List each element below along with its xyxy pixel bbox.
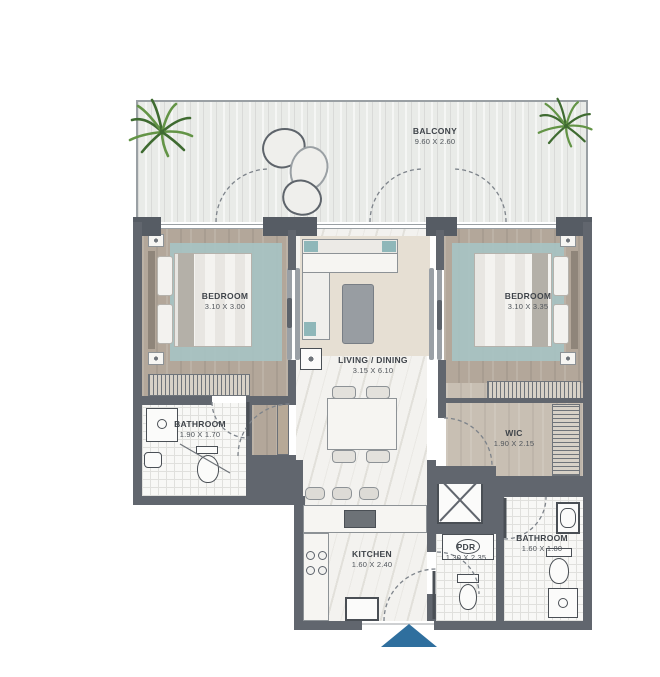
- toilet-icon: [197, 455, 219, 483]
- nightstand-icon: [148, 352, 164, 365]
- wall-kitchen-right: [427, 460, 436, 552]
- living-dining-dims: 3.15 X 6.10: [317, 366, 429, 375]
- bathroom-left-dims: 1.90 X 1.70: [148, 430, 252, 439]
- wall-bottom-outer: [434, 621, 592, 630]
- bar-stool-icon: [359, 487, 379, 500]
- bed-pillow: [553, 256, 569, 296]
- dining-chair-icon: [332, 450, 356, 463]
- coffee-table-icon: [342, 284, 374, 344]
- wall-pdr-right: [496, 497, 504, 621]
- bathroom-left-name: BATHROOM: [148, 419, 252, 430]
- kitchen-name: KITCHEN: [320, 549, 424, 560]
- wardrobe-hatch: [148, 374, 250, 396]
- toilet-tank: [196, 446, 218, 454]
- dining-chair-icon: [366, 450, 390, 463]
- label-bedroom-left: BEDROOM 3.10 X 3.00: [167, 291, 283, 311]
- bar-stool-icon: [332, 487, 352, 500]
- wall-kitchen-right: [427, 594, 436, 621]
- bedroom-left-name: BEDROOM: [167, 291, 283, 302]
- wall-bathroom-left-top: [248, 396, 296, 405]
- pdr-name: PDR: [436, 542, 496, 553]
- label-wic: WIC 1.90 X 2.15: [462, 428, 566, 448]
- label-pdr: PDR 1.30 X 2.35: [436, 542, 496, 562]
- wall-right-outer: [583, 222, 592, 630]
- kitchen-counter-leg: [303, 533, 329, 621]
- label-kitchen: KITCHEN 1.60 X 2.40: [320, 549, 424, 569]
- wall-wic-top: [444, 398, 583, 403]
- window-wall: [140, 224, 588, 229]
- sofa-cushion: [382, 241, 396, 252]
- sink-icon: [144, 452, 162, 468]
- wall-left-outer: [133, 222, 142, 505]
- bed-headboard: [148, 251, 155, 349]
- balcony-area: [136, 100, 588, 222]
- floorplan: BALCONY 9.60 X 2.60 BEDROOM 3.10 X 3.00 …: [0, 0, 660, 677]
- label-bathroom-left: BATHROOM 1.90 X 1.70: [148, 419, 252, 439]
- kitchen-dims: 1.60 X 2.40: [320, 560, 424, 569]
- toilet-icon: [549, 558, 569, 584]
- sliding-door-handle: [437, 300, 442, 330]
- dining-table-icon: [327, 398, 397, 450]
- nightstand-icon: [560, 352, 576, 365]
- pdr-dims: 1.30 X 2.35: [436, 553, 496, 562]
- wall-wic-bottom: [436, 476, 583, 484]
- wall-bottom-outer: [294, 621, 362, 630]
- sliding-door-handle: [287, 298, 292, 328]
- wall-pdr-top: [427, 527, 496, 534]
- balcony-dims: 9.60 X 2.60: [360, 137, 510, 146]
- bed-pillow: [157, 256, 173, 296]
- entry-cabinet-icon: [345, 597, 379, 621]
- sliding-door-panel: [295, 268, 300, 360]
- bar-stool-icon: [305, 487, 325, 500]
- bathroom-right-dims: 1.60 X 1.80: [502, 544, 582, 553]
- sofa-seat: [302, 253, 398, 273]
- wall-living-wic: [438, 360, 446, 418]
- label-bedroom-right: BEDROOM 3.10 X 3.35: [470, 291, 586, 311]
- stove-burner-icon: [306, 566, 315, 575]
- bathroom-right-name: BATHROOM: [502, 533, 582, 544]
- sofa-cushion: [304, 241, 318, 252]
- toilet-tank: [457, 574, 479, 583]
- wall-chunk: [252, 455, 296, 500]
- entry-arrow-icon: [381, 624, 437, 647]
- wic-dims: 1.90 X 2.15: [462, 439, 566, 448]
- wall-bedroom-left: [288, 230, 296, 270]
- toilet-icon: [459, 584, 477, 610]
- kitchen-sink-icon: [344, 510, 376, 528]
- wall-bathroom-right-top: [496, 484, 583, 497]
- stove-burner-icon: [306, 551, 315, 560]
- bedroom-right-name: BEDROOM: [470, 291, 586, 302]
- label-bathroom-right: BATHROOM 1.60 X 1.80: [502, 533, 582, 553]
- door-leaf: [277, 403, 289, 455]
- bedroom-right-dims: 3.10 X 3.35: [470, 302, 586, 311]
- living-dining-name: LIVING / DINING: [317, 355, 429, 366]
- balcony-name: BALCONY: [360, 126, 510, 137]
- wall-bathroom-left-top: [133, 396, 212, 405]
- shower-drain-icon: [558, 598, 568, 608]
- label-living-dining: LIVING / DINING 3.15 X 6.10: [317, 355, 429, 375]
- sliding-door-panel: [429, 268, 434, 360]
- wall-bedroom-right: [436, 230, 444, 270]
- sink-bowl: [560, 508, 576, 528]
- sofa-cushion: [304, 322, 316, 336]
- bedroom-left-dims: 3.10 X 3.00: [167, 302, 283, 311]
- wic-name: WIC: [462, 428, 566, 439]
- label-balcony: BALCONY 9.60 X 2.60: [360, 126, 510, 146]
